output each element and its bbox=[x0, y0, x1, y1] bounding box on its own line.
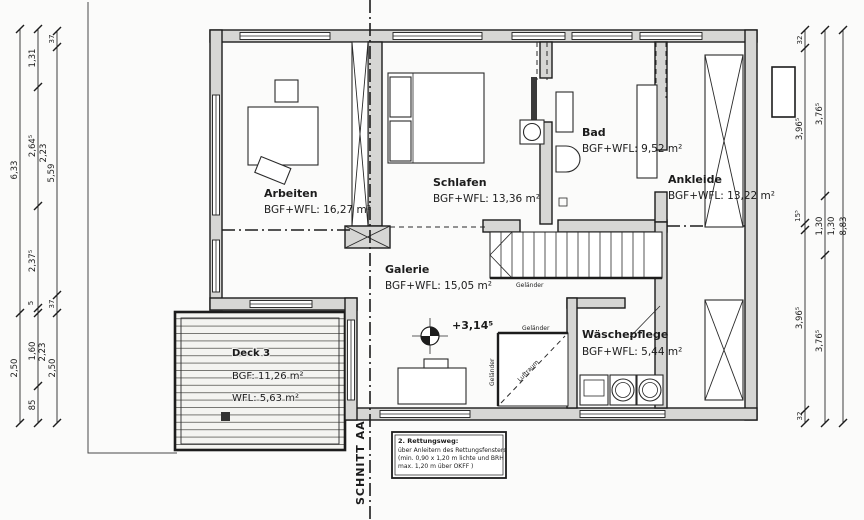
dim-r3-b: 8,83 bbox=[839, 217, 849, 236]
dim-r2-c: 3,76⁵ bbox=[815, 330, 825, 352]
label-bad-area: BGF+WFL: 9,52 m² bbox=[582, 143, 682, 155]
wardrobe-bottom bbox=[705, 300, 743, 400]
dim-l3-a: 37 bbox=[48, 35, 56, 44]
dim-l2-a: 1,31 bbox=[28, 49, 38, 68]
note-line3: max. 1,20 m über OKFF ) bbox=[398, 463, 473, 470]
desk-galerie bbox=[398, 368, 466, 404]
deck-name: Deck 3 bbox=[232, 348, 270, 359]
label-waeschepflege-area: BGF+WFL: 5,44 m² bbox=[582, 346, 682, 358]
railing-label-void-top: Geländer bbox=[522, 325, 550, 332]
label-arbeiten-name: Arbeiten bbox=[264, 187, 318, 200]
dim-l3-b: 2,23 bbox=[39, 144, 49, 163]
floor-drain bbox=[559, 198, 567, 206]
chimney bbox=[772, 67, 795, 117]
deck-marker bbox=[221, 412, 230, 421]
dim-l3-f: 2,50 bbox=[48, 359, 58, 378]
dim-l2-f: 85 bbox=[28, 400, 38, 411]
label-waeschepflege-name: Wäschepflege bbox=[582, 328, 668, 341]
dim-l1-b: 2,50 bbox=[10, 359, 20, 378]
dim-l3-e: 2,23 bbox=[38, 343, 48, 362]
shower bbox=[637, 85, 657, 178]
floor-plan-canvas: Deck 3 BGF: 11,26 m² WFL: 5,63 m² bbox=[0, 0, 864, 520]
shelf-galerie bbox=[424, 359, 448, 368]
label-galerie-area: BGF+WFL: 15,05 m² bbox=[385, 280, 492, 292]
dim-l2-c: 2,37⁵ bbox=[28, 250, 38, 272]
washbasin bbox=[556, 92, 573, 132]
label-galerie-name: Galerie bbox=[385, 263, 429, 276]
wc bbox=[556, 146, 580, 172]
door-leaf-bad bbox=[531, 77, 537, 122]
note-line2: (min. 0,90 x 1,20 m lichte und BRH bbox=[398, 455, 504, 462]
label-bad-name: Bad bbox=[582, 126, 606, 139]
dim-r2-b: 1,30 bbox=[815, 217, 825, 236]
dim-l1-a: 6,33 bbox=[10, 161, 20, 180]
dim-r2-a: 3,76⁵ bbox=[815, 103, 825, 125]
dim-l2-e: 1,60 bbox=[28, 342, 38, 361]
deck-wfl: WFL: 5,63 m² bbox=[232, 393, 299, 404]
dim-r1-b: 3,96⁵ bbox=[795, 118, 805, 140]
section-label: SCHNITT AA bbox=[354, 420, 367, 505]
label-schlafen-area: BGF+WFL: 13,36 m² bbox=[433, 193, 540, 205]
cabinet-arbeiten bbox=[275, 80, 298, 102]
dim-r1-d: 3,96⁵ bbox=[795, 307, 805, 329]
desk-arbeiten bbox=[248, 107, 318, 165]
note-line1: über Anleitern des Rettungsfensters bbox=[398, 447, 506, 454]
railing-label-stairs: Geländer bbox=[516, 282, 544, 289]
dim-r1-e: 32 bbox=[796, 412, 804, 421]
dim-l3-c: 5,59 bbox=[47, 164, 57, 183]
dim-l3-d: 37 bbox=[48, 300, 56, 309]
level-value: +3,14⁵ bbox=[452, 319, 493, 332]
label-arbeiten-area: BGF+WFL: 16,27 m² bbox=[264, 204, 371, 216]
dim-l2-b: 2,64⁵ bbox=[28, 135, 38, 157]
deck-bgf: BGF: 11,26 m² bbox=[232, 371, 304, 382]
dim-r1-a: 32 bbox=[796, 36, 804, 45]
dim-l2-d: 5 bbox=[27, 301, 35, 305]
label-ankleide-name: Ankleide bbox=[668, 173, 722, 186]
staircase: Geländer bbox=[490, 232, 662, 289]
label-schlafen-name: Schlafen bbox=[433, 176, 487, 189]
dimension-chain-left: 6,33 2,50 1,31 2,64⁵ 2,37⁵ 5 1,60 85 37 … bbox=[10, 25, 61, 427]
railing-label-void-left: Geländer bbox=[489, 358, 496, 386]
dim-r3-a: 1,30 bbox=[827, 217, 837, 236]
dim-r1-c: 15⁵ bbox=[794, 210, 802, 222]
site-boundary-line bbox=[88, 2, 177, 453]
dimension-chain-right: 32 3,96⁵ 15⁵ 3,96⁵ 32 3,76⁵ 1,30 3,76⁵ 1… bbox=[794, 26, 849, 427]
label-ankleide-area: BGF+WFL: 13,22 m² bbox=[668, 190, 775, 202]
rescue-route-note: 2. Rettungsweg: über Anleitern des Rettu… bbox=[392, 432, 506, 478]
note-title: 2. Rettungsweg: bbox=[398, 437, 458, 445]
deck-3: Deck 3 BGF: 11,26 m² WFL: 5,63 m² bbox=[175, 312, 345, 450]
level-marker: +3,14⁵ bbox=[412, 318, 493, 354]
airspace-void: Geländer Geländer Luftraum bbox=[489, 325, 568, 406]
